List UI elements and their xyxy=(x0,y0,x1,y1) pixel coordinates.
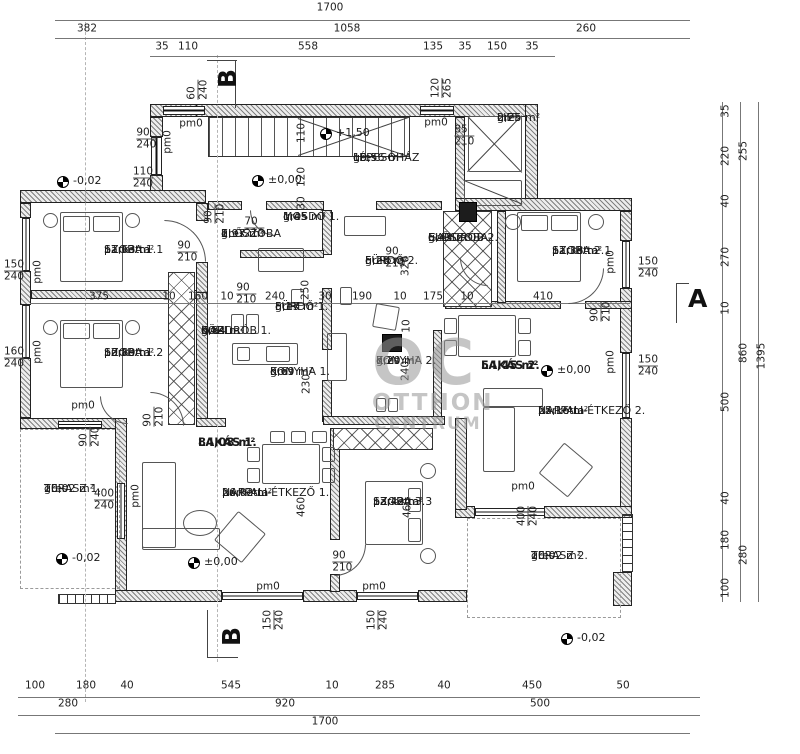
watermark-line1: OTTHON xyxy=(372,390,494,416)
wall-segment xyxy=(20,203,31,218)
dimension-line xyxy=(30,303,630,304)
furniture xyxy=(237,347,250,361)
dim-label-denominator: 210 xyxy=(154,407,166,427)
furniture xyxy=(340,287,352,305)
furniture-round xyxy=(43,320,58,335)
furniture xyxy=(483,407,515,472)
dim-label: 1395 xyxy=(756,343,767,370)
dimension-line xyxy=(55,733,690,734)
dim-label: 100 xyxy=(25,680,45,691)
dim-label: 410 xyxy=(533,291,553,302)
dim-label-denominator: 240 xyxy=(4,271,24,283)
dim-label: 35 xyxy=(155,41,168,52)
dim-label: pm0 xyxy=(424,117,448,128)
dimension-line xyxy=(55,38,690,39)
dim-label: 150240 xyxy=(638,354,658,365)
dim-label: 150240 xyxy=(262,610,273,630)
dim-label-denominator: 210 xyxy=(601,302,613,322)
furniture xyxy=(551,215,578,231)
dim-label: 500 xyxy=(720,392,731,412)
dim-label: 60240 xyxy=(186,86,197,99)
dim-label: 460 xyxy=(296,497,307,517)
window-glazing xyxy=(420,106,454,115)
wall-segment xyxy=(418,590,467,602)
section-marker: A xyxy=(688,284,707,313)
dim-label: 90210 xyxy=(177,240,190,251)
dim-label: 70210 xyxy=(244,216,257,227)
dim-label: 10 xyxy=(220,291,233,302)
dim-label: 40 xyxy=(720,194,731,207)
paving-strip xyxy=(622,514,633,572)
dim-label-denominator: 240 xyxy=(94,500,114,512)
window-glazing xyxy=(622,241,630,288)
dim-label: 90210 xyxy=(332,550,345,561)
dim-label: 255 xyxy=(738,141,749,161)
room-label-ar: 6,84 m² xyxy=(201,325,244,338)
dim-label: 110 xyxy=(178,41,198,52)
level-marker-icon xyxy=(57,176,69,188)
level-marker-value: +1,50 xyxy=(336,126,370,139)
level-marker-value: ±0,00 xyxy=(204,555,238,568)
furniture xyxy=(93,216,120,232)
room-label-ar: 2,25 m² xyxy=(497,112,540,125)
dim-label: 120265 xyxy=(430,78,441,98)
dimension-line xyxy=(18,697,700,698)
dim-label: 920 xyxy=(275,698,295,709)
room-label-ar: 26,02 m² xyxy=(222,487,272,500)
dim-label: 500 xyxy=(530,698,550,709)
dim-label: 90240 xyxy=(136,127,149,138)
dim-label: 90210 xyxy=(589,308,600,321)
dim-label-denominator: 265 xyxy=(442,78,454,98)
dim-label: pm0 xyxy=(511,481,535,492)
furniture xyxy=(344,216,386,236)
dim-label: pm0 xyxy=(71,400,95,411)
section-marker: B xyxy=(213,69,242,88)
dim-label: 110 xyxy=(296,123,307,143)
wall-segment xyxy=(330,574,340,592)
dim-label: 150240 xyxy=(4,259,24,270)
dim-label-denominator: 240 xyxy=(638,366,658,378)
furniture xyxy=(312,431,327,443)
dimension-line xyxy=(55,20,690,21)
dim-label: 160240 xyxy=(4,346,24,357)
furniture-round xyxy=(125,213,140,228)
furniture xyxy=(518,318,531,334)
wall-segment xyxy=(115,590,222,602)
dim-label: 280 xyxy=(58,698,78,709)
door-swing-arc xyxy=(568,268,604,304)
dim-label-denominator: 210 xyxy=(215,204,227,224)
dim-label: 175 xyxy=(423,291,443,302)
furniture xyxy=(262,444,320,484)
dimension-line xyxy=(150,56,555,57)
floorplan-canvas: 1700382105826035110558135351503535220402… xyxy=(0,0,800,754)
dim-label: 382 xyxy=(77,23,97,34)
section-marker: B xyxy=(217,627,246,646)
dim-label: pm0 xyxy=(32,340,43,364)
level-marker-value: ±0,00 xyxy=(268,173,302,186)
dim-label: pm0 xyxy=(362,581,386,592)
level-marker-icon xyxy=(188,557,200,569)
room-label-ar: 5,28 m² xyxy=(365,255,408,268)
watermark-line2: CENTRUM xyxy=(374,414,482,434)
dim-label: 110240 xyxy=(133,166,153,177)
dim-label: 400240 xyxy=(516,506,527,526)
wall-segment xyxy=(376,201,442,210)
level-marker-icon xyxy=(541,365,553,377)
dim-label: 280 xyxy=(738,545,749,565)
room-label-ar: 11,38 m² xyxy=(552,245,602,258)
dim-label: 250 xyxy=(300,280,311,300)
room-label-ar: 5,69 m² xyxy=(270,366,313,379)
dim-label: 85210 xyxy=(454,124,467,135)
furniture xyxy=(518,340,531,356)
furniture-round xyxy=(588,214,604,230)
dim-label: 35 xyxy=(458,41,471,52)
furniture-round xyxy=(125,320,140,335)
dim-label-denominator: 240 xyxy=(136,139,156,151)
furniture xyxy=(322,447,335,462)
dim-label: 150240 xyxy=(638,256,658,267)
terrace-outline xyxy=(467,518,621,618)
level-marker-icon xyxy=(56,553,68,565)
dim-label: 90240 xyxy=(78,433,89,446)
dim-label-denominator: 240 xyxy=(90,427,102,447)
furniture xyxy=(63,216,90,232)
dim-label-denominator: 210 xyxy=(454,136,474,148)
level-marker-value: ±0,00 xyxy=(557,363,591,376)
furniture-round xyxy=(183,510,217,536)
dim-label: 10 xyxy=(460,291,473,302)
dim-label: 190 xyxy=(352,291,372,302)
wall-segment xyxy=(196,292,208,425)
room-label-ar: 20,02 m² xyxy=(531,550,581,563)
dim-label: 150 xyxy=(487,41,507,52)
furniture xyxy=(93,323,120,339)
level-marker-icon xyxy=(561,633,573,645)
dim-label: 180 xyxy=(720,530,731,550)
furniture xyxy=(322,468,335,483)
dim-label: 100 xyxy=(720,578,731,598)
dim-label-denominator: 240 xyxy=(198,80,210,100)
dim-label: pm0 xyxy=(162,130,173,154)
dim-label: 90210 xyxy=(203,210,214,223)
room-label-ar: 19,56 m² xyxy=(353,152,403,165)
level-marker-value: -0,02 xyxy=(73,174,101,187)
furniture xyxy=(63,323,90,339)
furniture xyxy=(539,442,594,497)
furniture xyxy=(521,215,548,231)
dim-label: pm0 xyxy=(130,484,141,508)
dim-label: 1700 xyxy=(312,716,339,727)
dim-label: pm0 xyxy=(605,350,616,374)
dim-label: 375 xyxy=(89,291,109,302)
dim-label: 180 xyxy=(76,680,96,691)
dim-label: 90210 xyxy=(236,282,249,293)
dim-label: 270 xyxy=(720,247,731,267)
furniture xyxy=(258,248,304,272)
room-label-ar: 54,45 m² xyxy=(481,359,538,372)
level-marker-value: -0,02 xyxy=(577,631,605,644)
dim-label-denominator: 240 xyxy=(274,610,286,630)
window-glazing xyxy=(357,592,418,600)
diagonal-line xyxy=(207,610,208,658)
wall-segment xyxy=(20,190,206,203)
dim-label-denominator: 240 xyxy=(638,268,658,280)
dim-label: pm0 xyxy=(179,118,203,129)
furniture-round xyxy=(43,213,58,228)
room-label-ar: 20,02 m² xyxy=(44,483,94,496)
dim-label: 10 xyxy=(393,291,406,302)
dim-label: pm0 xyxy=(256,581,280,592)
dim-label: 135 xyxy=(423,41,443,52)
dim-label: 160 xyxy=(188,291,208,302)
dim-label-denominator: 240 xyxy=(528,506,540,526)
furniture-round xyxy=(420,548,436,564)
diagonal-line xyxy=(208,657,238,658)
room-label-ar: 13,42 m² xyxy=(373,496,423,509)
dim-label: 285 xyxy=(375,680,395,691)
level-marker-value: -0,02 xyxy=(72,551,100,564)
room-label-ar: 2,97 m² xyxy=(221,228,264,241)
dim-label: 260 xyxy=(576,23,596,34)
furniture xyxy=(291,431,306,443)
dim-label: 10 xyxy=(720,301,731,314)
dim-label-denominator: 240 xyxy=(4,358,24,370)
watermark-logo: OC xyxy=(372,326,478,399)
level-marker-icon xyxy=(252,175,264,187)
window-glazing xyxy=(163,106,205,115)
dim-label-denominator: 210 xyxy=(332,562,352,574)
room-label-ar: 10,89 m² xyxy=(104,347,154,360)
wall-segment xyxy=(544,506,632,518)
dim-label: 10 xyxy=(162,291,175,302)
dim-label: pm0 xyxy=(32,260,43,284)
dim-label: 1700 xyxy=(317,2,344,13)
furniture xyxy=(247,447,260,462)
dimension-line xyxy=(18,715,700,716)
furniture xyxy=(270,431,285,443)
dim-label-denominator: 210 xyxy=(236,294,256,306)
room-label-ar: 25,16 m² xyxy=(538,405,588,418)
room-label-ar: 1,45 m² xyxy=(283,211,326,224)
furniture xyxy=(266,346,290,362)
dim-label: 40 xyxy=(437,680,450,691)
diagonal-line xyxy=(207,60,237,61)
dim-label: 35 xyxy=(525,41,538,52)
wall-segment xyxy=(620,211,632,241)
dim-label: 10 xyxy=(325,680,338,691)
wall-segment xyxy=(196,262,208,294)
wall-segment xyxy=(196,418,226,427)
shaft-block xyxy=(459,202,477,222)
diagonal-line xyxy=(676,283,677,323)
dim-label: 1058 xyxy=(334,23,361,34)
window-glazing xyxy=(222,592,303,600)
dim-label-denominator: 240 xyxy=(378,610,390,630)
dim-label: 90210 xyxy=(142,413,153,426)
dimension-line xyxy=(722,102,723,602)
dim-label-denominator: 210 xyxy=(177,252,197,264)
level-marker-icon xyxy=(320,128,332,140)
axis-line xyxy=(217,55,218,662)
dim-label: 150240 xyxy=(366,610,377,630)
dim-label: 40 xyxy=(120,680,133,691)
room-label-ar: 5,43 m² xyxy=(428,232,471,245)
furniture xyxy=(408,518,421,542)
dim-label: 30 xyxy=(296,196,307,209)
paving-strip xyxy=(58,594,116,604)
dim-label-denominator: 240 xyxy=(133,178,153,190)
furniture-round xyxy=(505,214,521,230)
wall-segment xyxy=(620,418,632,518)
dim-label: 860 xyxy=(738,343,749,363)
furniture-round xyxy=(420,463,436,479)
room-label-ar: 84,08 m² xyxy=(198,436,255,449)
dim-label: 220 xyxy=(720,146,731,166)
furniture xyxy=(247,468,260,483)
dim-label: 35 xyxy=(720,104,731,117)
dim-label: 450 xyxy=(522,680,542,691)
dim-label: 558 xyxy=(298,41,318,52)
wall-segment xyxy=(620,288,632,353)
room-label-ar: 11,63 m² xyxy=(104,244,154,257)
dim-label: 545 xyxy=(221,680,241,691)
dim-label: 50 xyxy=(616,680,629,691)
room-label-ar: 5,17 m² xyxy=(275,301,318,314)
dim-label: 40 xyxy=(720,491,731,504)
